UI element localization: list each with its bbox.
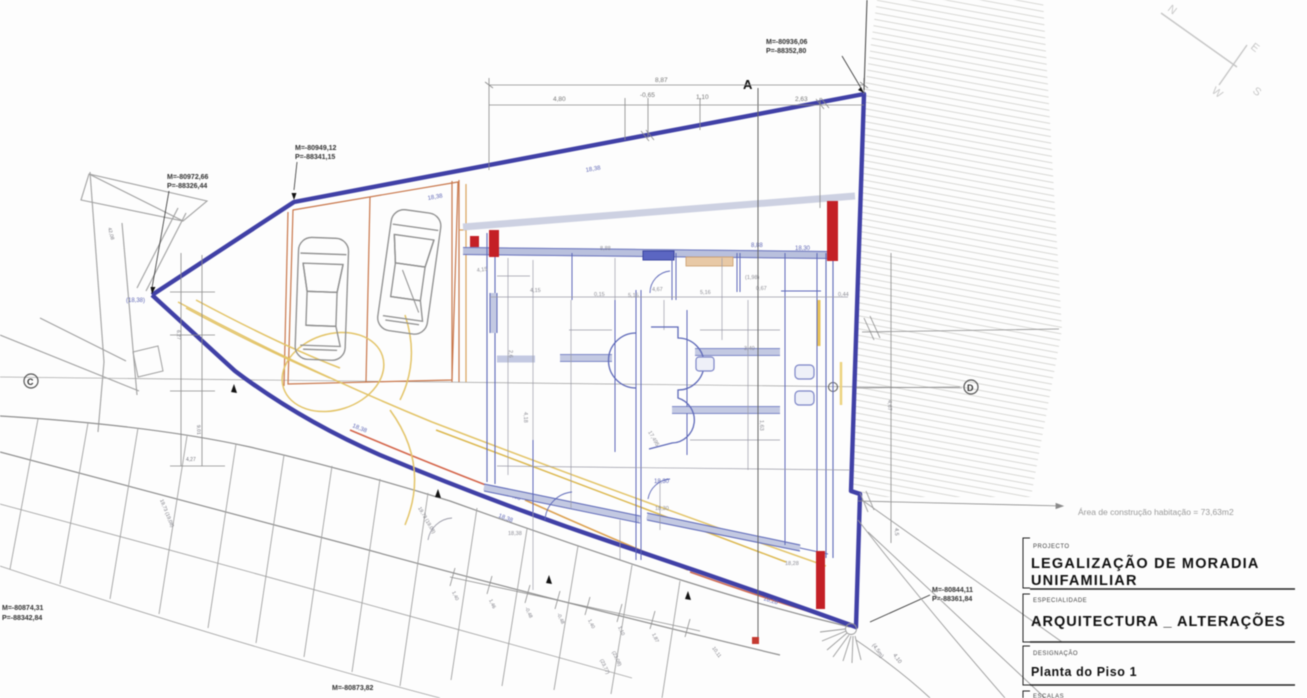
svg-text:4,15: 4,15 — [530, 288, 541, 294]
svg-text:C: C — [27, 377, 34, 387]
svg-text:UNIFAMILIAR: UNIFAMILIAR — [1031, 573, 1138, 589]
svg-text:4,5: 4,5 — [893, 528, 899, 536]
svg-text:1,10: 1,10 — [696, 94, 709, 101]
svg-text:18,38: 18,38 — [508, 531, 522, 537]
svg-text:M=-80873,82: M=-80873,82 — [332, 685, 374, 692]
svg-text:2,6: 2,6 — [507, 350, 513, 358]
svg-text:M=-80936,06: M=-80936,06 — [766, 39, 808, 46]
svg-text:Planta do Piso 1: Planta do Piso 1 — [1031, 665, 1137, 679]
svg-text:(1,98): (1,98) — [745, 275, 760, 281]
svg-text:1,63: 1,63 — [758, 420, 764, 431]
svg-text:-0,65: -0,65 — [640, 92, 655, 99]
svg-text:PROJECTO: PROJECTO — [1033, 544, 1070, 550]
svg-text:P=-88361,84: P=-88361,84 — [932, 596, 972, 603]
svg-text:P=-88342,84: P=-88342,84 — [2, 615, 42, 622]
svg-text:8,88: 8,88 — [600, 246, 611, 252]
svg-text:Área de construção habitação =: Área de construção habitação = 73,63m2 — [1078, 507, 1234, 517]
svg-text:D: D — [967, 383, 974, 393]
svg-text:DESIGNAÇÃO: DESIGNAÇÃO — [1033, 650, 1078, 657]
svg-text:3,40: 3,40 — [744, 346, 755, 352]
svg-text:5,16: 5,16 — [700, 290, 711, 296]
svg-text:M=-80972,66: M=-80972,66 — [167, 174, 209, 181]
svg-text:5,15: 5,15 — [628, 293, 639, 299]
svg-text:ARQUITECTURA _ ALTERAÇÕES: ARQUITECTURA _ ALTERAÇÕES — [1031, 612, 1286, 630]
svg-text:P=-88352,80: P=-88352,80 — [766, 48, 806, 55]
svg-text:8,87: 8,87 — [655, 77, 668, 84]
svg-text:0,44: 0,44 — [838, 292, 849, 298]
svg-text:P=-88326,44: P=-88326,44 — [167, 183, 207, 190]
svg-text:P=-88341,15: P=-88341,15 — [295, 154, 335, 161]
svg-text:0,15: 0,15 — [594, 292, 605, 298]
svg-text:18,28: 18,28 — [785, 561, 799, 567]
svg-text:4,80: 4,80 — [553, 96, 566, 103]
svg-text:M=-80949,12: M=-80949,12 — [295, 145, 337, 152]
svg-text:9,01: 9,01 — [195, 425, 201, 435]
svg-text:4,27: 4,27 — [186, 457, 196, 463]
svg-text:(18,38): (18,38) — [126, 298, 145, 304]
svg-text:ESCALAS: ESCALAS — [1033, 694, 1064, 698]
svg-text:LEGALIZAÇÃO DE MORADIA: LEGALIZAÇÃO DE MORADIA — [1031, 554, 1260, 572]
svg-text:18,30: 18,30 — [655, 506, 669, 512]
svg-text:4,18: 4,18 — [522, 412, 528, 423]
svg-text:2,63: 2,63 — [795, 96, 808, 103]
svg-text:4,67: 4,67 — [652, 287, 663, 293]
svg-text:M=-80874,31: M=-80874,31 — [2, 605, 44, 612]
svg-text:8,88: 8,88 — [751, 243, 763, 249]
svg-text:M=-80844,11: M=-80844,11 — [932, 587, 973, 594]
svg-text:ESPECIALIDADE: ESPECIALIDADE — [1033, 598, 1087, 604]
svg-text:A: A — [743, 77, 753, 92]
